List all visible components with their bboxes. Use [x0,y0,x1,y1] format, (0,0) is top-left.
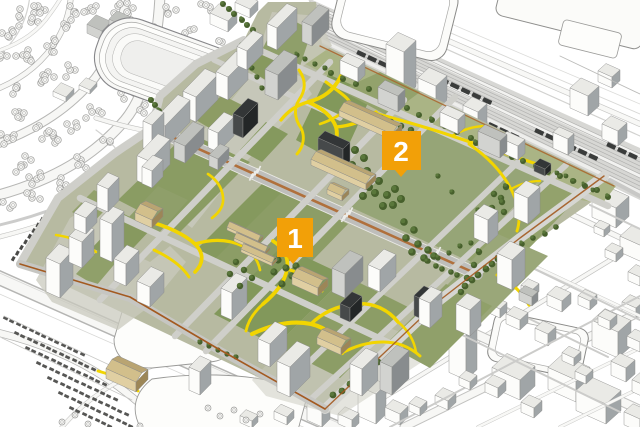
svg-text:1: 1 [287,223,303,254]
svg-text:2: 2 [393,136,409,167]
